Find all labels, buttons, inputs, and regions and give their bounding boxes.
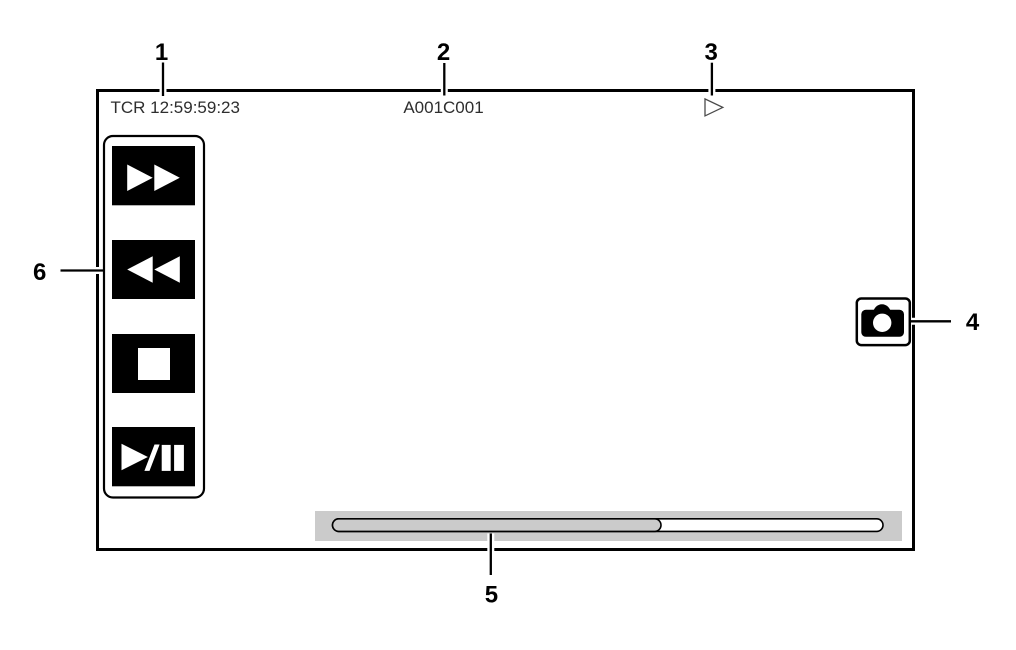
svg-text:5: 5 (485, 582, 498, 609)
svg-text:1: 1 (155, 39, 168, 66)
svg-text:4: 4 (966, 309, 980, 336)
svg-text:2: 2 (437, 39, 450, 66)
svg-text:6: 6 (33, 259, 46, 286)
svg-text:A001C001: A001C001 (403, 98, 483, 117)
svg-text:3: 3 (705, 39, 718, 66)
svg-text:TCR 12:59:59:23: TCR 12:59:59:23 (111, 98, 240, 117)
